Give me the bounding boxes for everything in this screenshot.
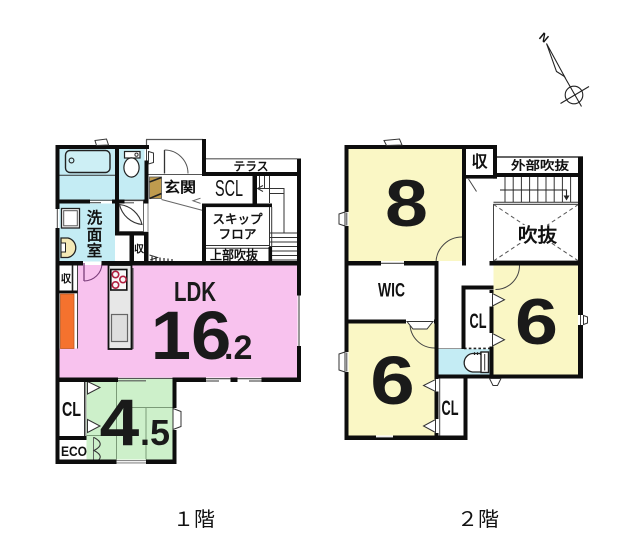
svg-text:16: 16: [151, 297, 232, 374]
svg-text:4: 4: [100, 385, 140, 459]
svg-text:CL: CL: [442, 397, 459, 420]
svg-text:１階: １階: [173, 508, 215, 531]
svg-text:室: 室: [87, 241, 103, 260]
svg-text:.2: .2: [224, 329, 252, 367]
svg-text:収: 収: [134, 244, 145, 256]
svg-text:収: 収: [61, 273, 72, 285]
svg-text:テラス: テラス: [234, 160, 269, 174]
svg-text:6: 6: [515, 286, 558, 359]
svg-text:２階: ２階: [457, 508, 499, 531]
svg-text:6: 6: [370, 341, 415, 419]
svg-text:洗: 洗: [87, 208, 103, 227]
svg-text:SCL: SCL: [215, 175, 243, 201]
svg-text:CL: CL: [470, 310, 487, 333]
svg-text:収: 収: [471, 153, 488, 171]
svg-text:フロア: フロア: [219, 228, 257, 242]
svg-text:CL: CL: [62, 399, 81, 421]
svg-text:外部吹抜: 外部吹抜: [511, 158, 570, 173]
svg-text:吹抜: 吹抜: [518, 224, 558, 247]
svg-text:面: 面: [87, 226, 103, 244]
svg-text:WIC: WIC: [378, 281, 405, 302]
svg-text:スキップ: スキップ: [213, 212, 263, 227]
svg-text:8: 8: [385, 167, 428, 241]
svg-text:.5: .5: [140, 412, 170, 453]
svg-text:玄関: 玄関: [164, 179, 196, 197]
svg-text:上部吹抜: 上部吹抜: [210, 248, 258, 263]
svg-text:ECO: ECO: [61, 443, 87, 459]
